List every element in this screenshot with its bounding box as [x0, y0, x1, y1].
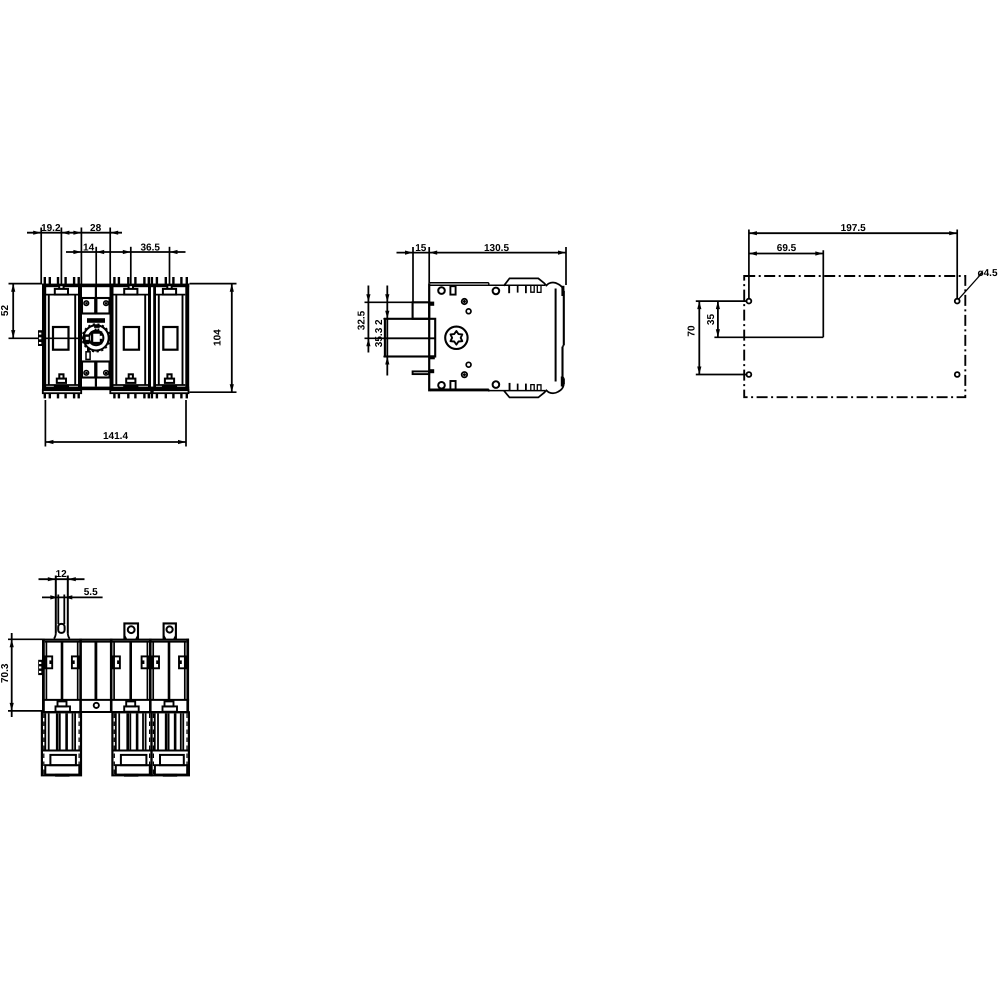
- svg-text:197.5: 197.5: [841, 223, 866, 234]
- svg-text:69.5: 69.5: [777, 243, 797, 254]
- svg-text:14: 14: [83, 243, 95, 254]
- svg-text:32.5: 32.5: [357, 310, 368, 330]
- svg-text:141.4: 141.4: [103, 431, 128, 442]
- svg-text:35.3 2: 35.3 2: [374, 319, 385, 347]
- svg-text:12: 12: [56, 569, 68, 580]
- svg-text:28: 28: [90, 223, 102, 234]
- svg-text:5.5: 5.5: [84, 587, 98, 598]
- svg-text:70: 70: [686, 325, 697, 337]
- svg-text:104: 104: [213, 329, 224, 346]
- svg-text:ø4.5: ø4.5: [978, 268, 998, 279]
- svg-text:35: 35: [706, 314, 717, 326]
- svg-text:70.3: 70.3: [0, 663, 11, 683]
- svg-text:36.5: 36.5: [140, 243, 160, 254]
- svg-text:130.5: 130.5: [484, 243, 509, 254]
- svg-text:15: 15: [415, 243, 427, 254]
- svg-text:52: 52: [0, 305, 11, 317]
- svg-text:19.2: 19.2: [41, 223, 61, 234]
